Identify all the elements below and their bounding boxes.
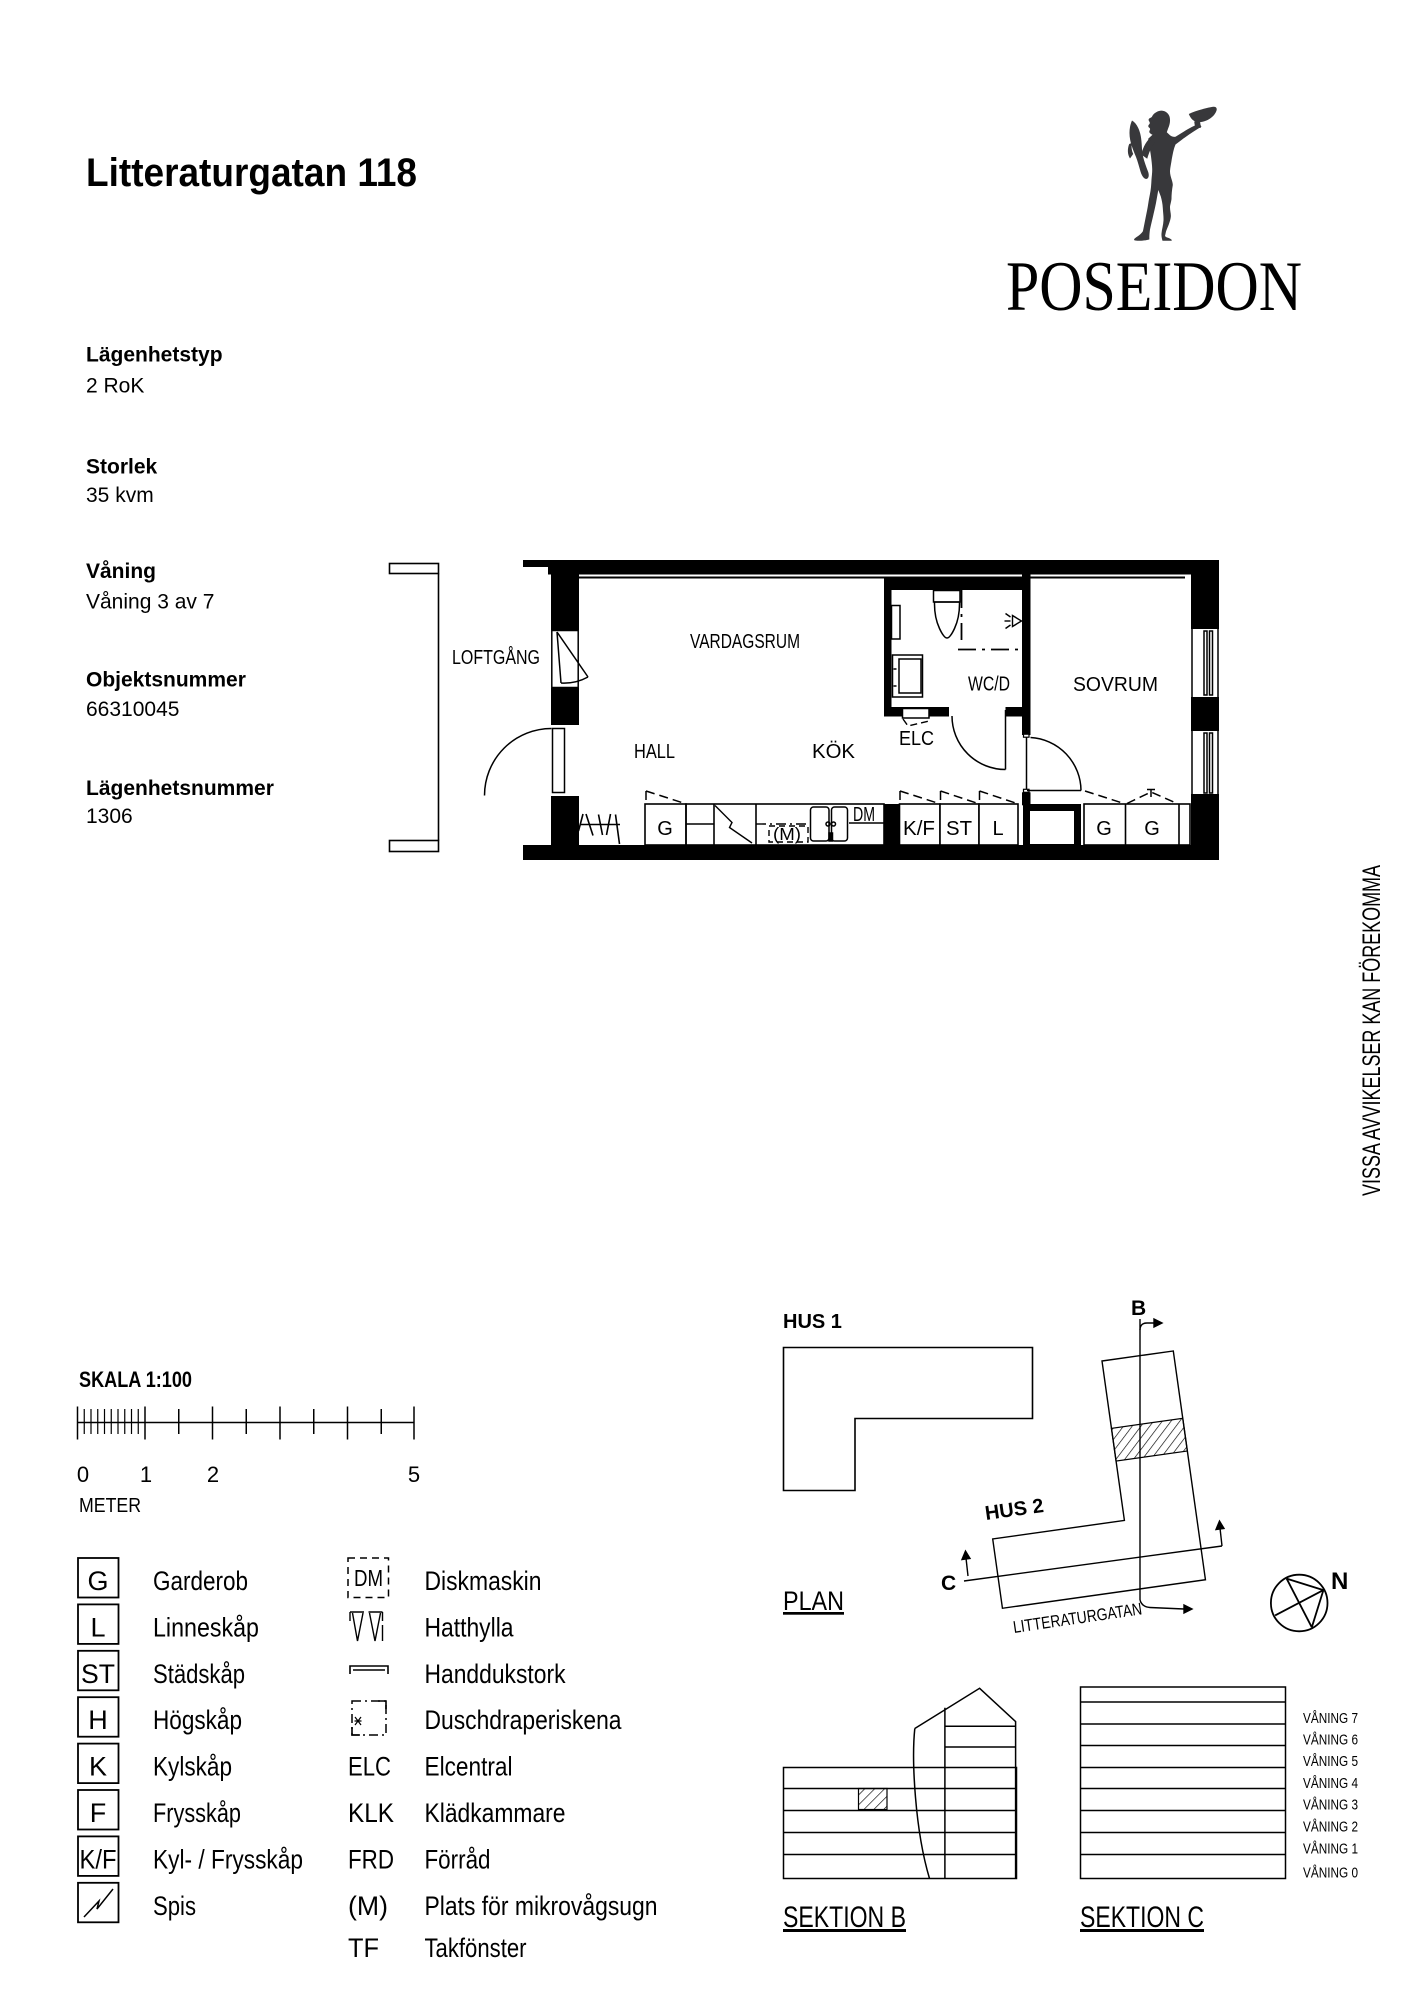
svg-text:C: C: [941, 1572, 956, 1595]
svg-text:HUS 1: HUS 1: [783, 1311, 842, 1333]
svg-text:VÅNING 6: VÅNING 6: [1303, 1732, 1358, 1749]
svg-text:F: F: [90, 1798, 107, 1828]
svg-text:Lägenhetsnummer: Lägenhetsnummer: [86, 777, 274, 800]
svg-text:ST: ST: [946, 818, 972, 840]
svg-text:L: L: [90, 1612, 105, 1642]
svg-text:N: N: [1331, 1568, 1348, 1595]
svg-text:35 kvm: 35 kvm: [86, 484, 154, 507]
svg-text:(M): (M): [348, 1891, 388, 1921]
svg-text:Diskmaskin: Diskmaskin: [425, 1566, 542, 1596]
svg-text:K: K: [89, 1752, 107, 1782]
svg-text:G: G: [1096, 818, 1112, 840]
svg-text:VÅNING 2: VÅNING 2: [1303, 1819, 1358, 1836]
svg-text:Spis: Spis: [153, 1891, 196, 1921]
svg-text:Klädkammare: Klädkammare: [425, 1798, 566, 1828]
svg-text:0: 0: [77, 1462, 89, 1487]
svg-text:Objektsnummer: Objektsnummer: [86, 669, 246, 692]
svg-text:VISSA AVVIKELSER KAN FÖREKOMMA: VISSA AVVIKELSER KAN FÖREKOMMA: [1358, 865, 1386, 1196]
svg-text:2 RoK: 2 RoK: [86, 375, 144, 398]
svg-text:SEKTION C: SEKTION C: [1080, 1901, 1204, 1934]
svg-text:1306: 1306: [86, 805, 133, 828]
svg-text:HALL: HALL: [634, 741, 675, 763]
svg-text:Frysskåp: Frysskåp: [153, 1798, 241, 1828]
svg-text:VÅNING 0: VÅNING 0: [1303, 1865, 1358, 1882]
svg-text:PLAN: PLAN: [783, 1586, 844, 1616]
svg-text:METER: METER: [79, 1495, 141, 1517]
svg-text:Våning 3 av 7: Våning 3 av 7: [86, 591, 214, 614]
svg-text:WC/D: WC/D: [968, 674, 1010, 696]
svg-text:Hatthylla: Hatthylla: [425, 1612, 515, 1642]
svg-text:Takfönster: Takfönster: [425, 1933, 527, 1963]
svg-text:SEKTION B: SEKTION B: [783, 1901, 906, 1934]
svg-text:ELC: ELC: [899, 728, 934, 750]
svg-text:Kyl- / Frysskåp: Kyl- / Frysskåp: [153, 1844, 303, 1874]
svg-text:Handdukstork: Handdukstork: [425, 1659, 566, 1689]
svg-text:VÅNING 1: VÅNING 1: [1303, 1841, 1358, 1858]
svg-text:H: H: [88, 1705, 108, 1735]
svg-text:VARDAGSRUM: VARDAGSRUM: [690, 631, 800, 653]
svg-text:Storlek: Storlek: [86, 456, 158, 479]
svg-text:L: L: [992, 818, 1003, 840]
svg-text:G: G: [657, 818, 673, 840]
svg-text:Litteraturgatan 118: Litteraturgatan 118: [86, 151, 417, 195]
svg-text:VÅNING 7: VÅNING 7: [1303, 1710, 1358, 1727]
svg-text:5: 5: [408, 1462, 420, 1487]
svg-text:Högskåp: Högskåp: [153, 1705, 242, 1735]
svg-text:VÅNING 5: VÅNING 5: [1303, 1753, 1358, 1770]
svg-text:G: G: [87, 1566, 108, 1596]
svg-text:(M): (M): [773, 824, 801, 844]
svg-text:B: B: [1131, 1297, 1146, 1320]
svg-text:K/F: K/F: [80, 1844, 117, 1874]
svg-text:Kylskåp: Kylskåp: [153, 1752, 232, 1782]
svg-text:VÅNING 3: VÅNING 3: [1303, 1797, 1358, 1814]
svg-text:POSEIDON: POSEIDON: [1006, 248, 1302, 326]
svg-text:Elcentral: Elcentral: [425, 1752, 513, 1782]
svg-text:KÖK: KÖK: [812, 741, 856, 763]
svg-text:ELC: ELC: [348, 1752, 391, 1782]
svg-text:VÅNING 4: VÅNING 4: [1303, 1775, 1358, 1792]
svg-text:SKALA 1:100: SKALA 1:100: [79, 1367, 192, 1392]
svg-text:66310045: 66310045: [86, 698, 179, 721]
svg-text:Våning: Våning: [86, 560, 156, 583]
svg-text:DM: DM: [354, 1565, 383, 1591]
svg-text:TF: TF: [348, 1933, 379, 1963]
svg-text:K/F: K/F: [903, 818, 935, 840]
svg-text:SOVRUM: SOVRUM: [1073, 674, 1158, 696]
svg-text:Garderob: Garderob: [153, 1566, 248, 1596]
svg-text:Linneskåp: Linneskåp: [153, 1612, 259, 1642]
svg-text:ST: ST: [81, 1659, 115, 1689]
svg-text:KLK: KLK: [348, 1798, 394, 1828]
svg-text:LOFTGÅNG: LOFTGÅNG: [452, 646, 540, 669]
svg-text:1: 1: [140, 1462, 152, 1487]
svg-text:Duschdraperiskena: Duschdraperiskena: [425, 1705, 623, 1735]
svg-text:Plats för mikrovågsugn: Plats för mikrovågsugn: [425, 1891, 658, 1921]
svg-text:G: G: [1144, 818, 1160, 840]
svg-text:Lägenhetstyp: Lägenhetstyp: [86, 344, 223, 367]
svg-text:FRD: FRD: [348, 1844, 394, 1874]
svg-text:Förråd: Förråd: [425, 1844, 491, 1874]
svg-text:Städskåp: Städskåp: [153, 1659, 245, 1689]
svg-text:2: 2: [207, 1462, 219, 1487]
